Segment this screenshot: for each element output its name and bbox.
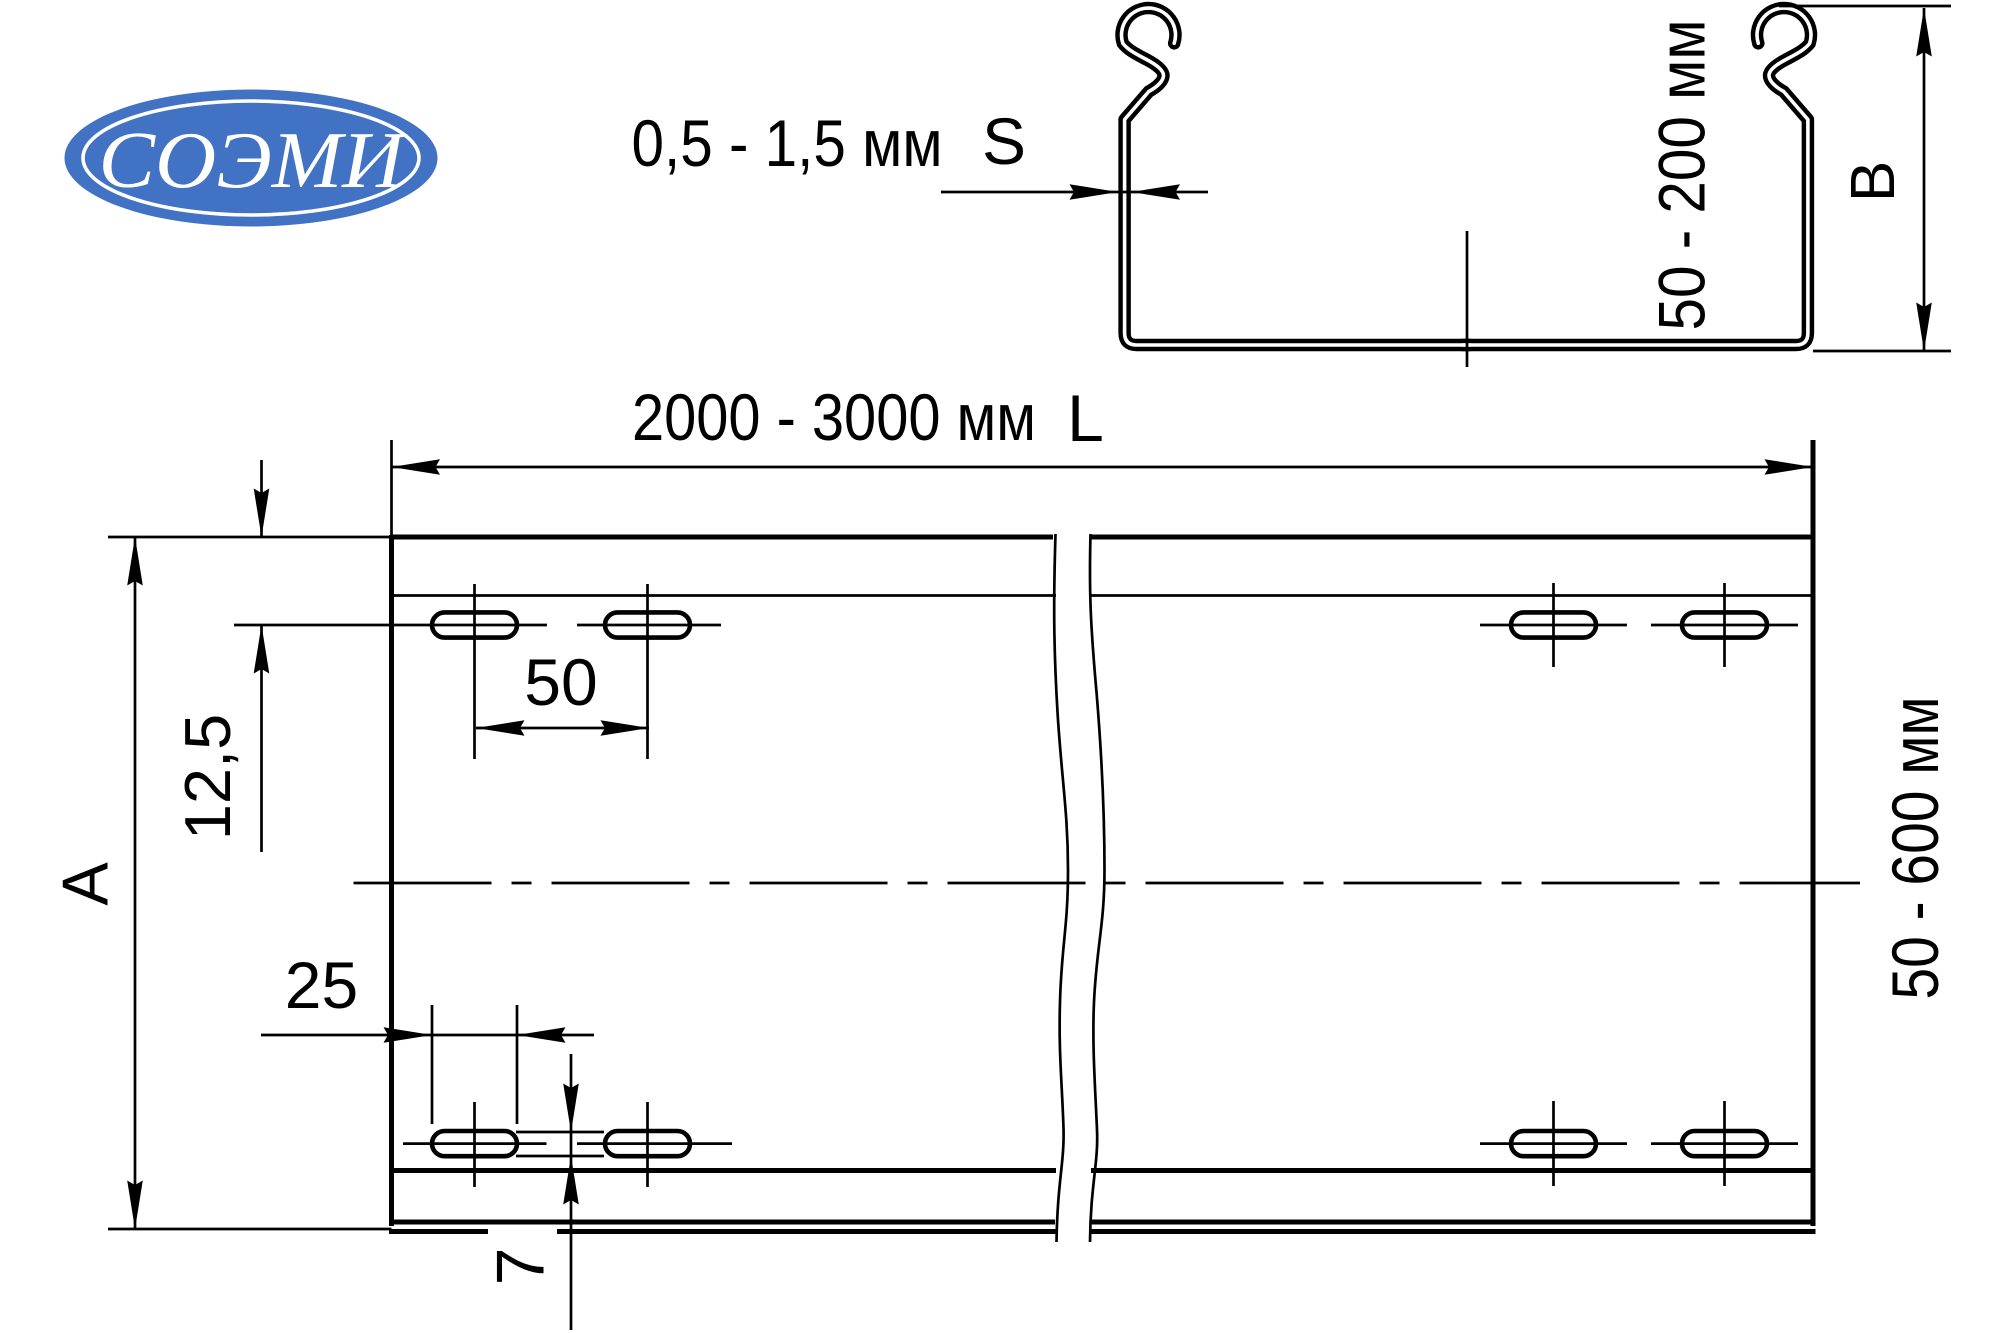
svg-text:СОЭМИ: СОЭМИ [99,117,408,205]
svg-text:A: A [49,862,122,906]
svg-text:50: 50 [524,645,597,719]
svg-text:12,5: 12,5 [171,714,244,841]
svg-text:0,5 - 1,5 мм: 0,5 - 1,5 мм [632,106,943,180]
svg-text:50 - 200 мм: 50 - 200 мм [1645,20,1719,331]
svg-text:L: L [1067,381,1104,455]
svg-text:50 - 600 мм: 50 - 600 мм [1878,697,1952,1000]
svg-text:S: S [982,104,1026,178]
svg-text:7: 7 [483,1248,559,1286]
svg-text:2000 - 3000 мм: 2000 - 3000 мм [632,380,1036,454]
svg-text:25: 25 [285,948,358,1022]
svg-text:B: B [1839,161,1908,202]
